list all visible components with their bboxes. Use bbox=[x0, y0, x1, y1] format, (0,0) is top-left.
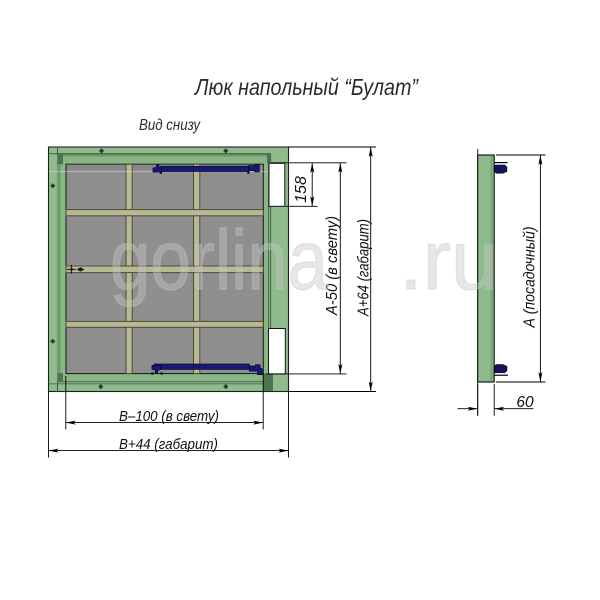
svg-text:Вид снизу: Вид снизу bbox=[139, 117, 201, 134]
svg-text:.ru: .ru bbox=[399, 213, 498, 307]
svg-text:В–100 (в свету): В–100 (в свету) bbox=[119, 409, 219, 425]
svg-text:А+64 (габарит): А+64 (габарит) bbox=[356, 219, 373, 317]
svg-text:158: 158 bbox=[293, 176, 310, 203]
svg-text:В+44 (габарит): В+44 (габарит) bbox=[119, 437, 218, 453]
svg-text:А (посадочный): А (посадочный) bbox=[522, 227, 539, 329]
svg-text:Люк напольный “Булат”: Люк напольный “Булат” bbox=[193, 74, 419, 100]
svg-text:60: 60 bbox=[516, 394, 534, 411]
svg-text:gorlina: gorlina bbox=[110, 213, 328, 307]
